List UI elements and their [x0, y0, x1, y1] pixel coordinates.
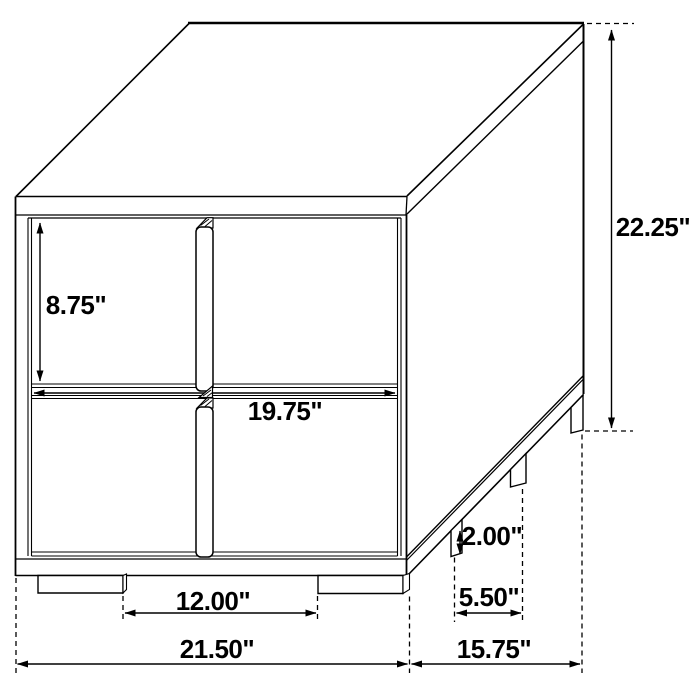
front-left-leg-side — [123, 574, 127, 593]
bottom-drawer-handle — [196, 407, 213, 557]
dimension-label-front-leg-spacing: 12.00" — [176, 588, 250, 614]
dimension-label-leg-height: 2.00" — [462, 523, 522, 549]
side-back-leg — [571, 395, 583, 433]
dimension-label-overall-depth: 15.75" — [457, 636, 531, 662]
dimension-label-drawer-height: 8.75" — [46, 292, 106, 318]
top-drawer-handle — [196, 227, 213, 391]
drawer-handles — [196, 218, 213, 557]
side-middle-leg — [511, 454, 527, 488]
dimension-label-drawer-width: 19.75" — [248, 398, 322, 424]
dimension-lines — [18, 30, 612, 664]
dimension-diagram: 8.75" 19.75" 22.25" 2.00" 5.50" 12.00" 2… — [0, 0, 700, 700]
nightstand-line-drawing — [0, 0, 700, 700]
front-left-leg — [38, 576, 123, 594]
dimension-label-overall-width: 21.50" — [180, 636, 254, 662]
front-right-leg-side — [403, 574, 410, 594]
front-right-leg — [318, 576, 403, 594]
dimension-label-overall-height: 22.25" — [616, 214, 690, 240]
dimension-label-side-leg-spacing: 5.50" — [459, 584, 519, 610]
top-face — [16, 23, 585, 215]
